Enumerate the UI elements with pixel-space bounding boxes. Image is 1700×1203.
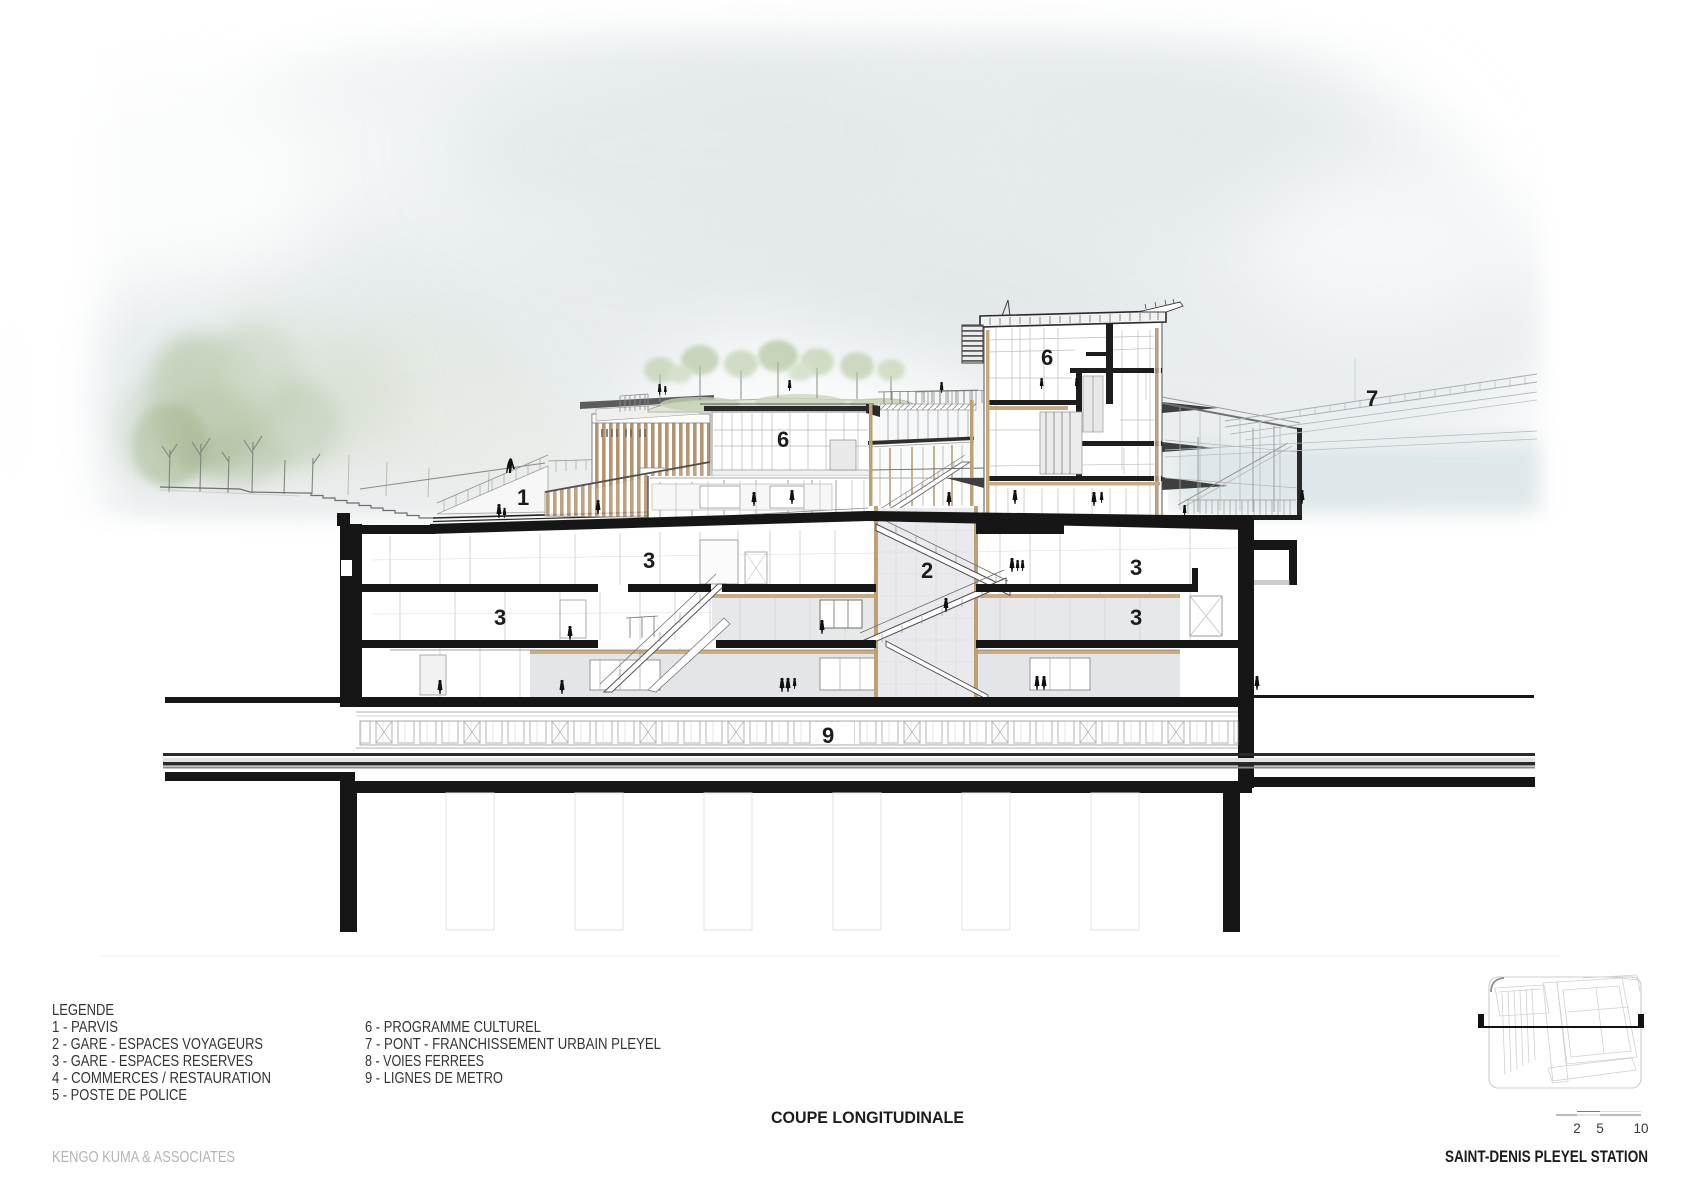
svg-text:LEGENDE: LEGENDE — [52, 1002, 114, 1019]
svg-text:KENGO KUMA & ASSOCIATES: KENGO KUMA & ASSOCIATES — [52, 1149, 235, 1166]
svg-text:3: 3 — [494, 605, 506, 630]
svg-text:1: 1 — [517, 485, 529, 510]
svg-text:7 - PONT - FRANCHISSEMENT URB: 7 - PONT - FRANCHISSEMENT URBAIN PLEYEL — [365, 1036, 661, 1053]
svg-text:6: 6 — [777, 427, 789, 452]
svg-text:9 - LIGNES DE METRO: 9 - LIGNES DE METRO — [365, 1070, 503, 1087]
svg-text:8 - VOIES FERREES: 8 - VOIES FERREES — [365, 1053, 484, 1070]
svg-text:2 - GARE - ESPACES VOYAGEURS: 2 - GARE - ESPACES VOYAGEURS — [52, 1036, 263, 1053]
svg-text:7: 7 — [1366, 386, 1378, 411]
svg-text:5: 5 — [1596, 1121, 1604, 1136]
svg-text:3: 3 — [1130, 555, 1142, 580]
svg-text:1 - PARVIS: 1 - PARVIS — [52, 1019, 118, 1036]
svg-text:4 - COMMERCES / RESTAURATION: 4 - COMMERCES / RESTAURATION — [52, 1070, 271, 1087]
svg-text:6: 6 — [1041, 345, 1053, 370]
svg-text:SAINT-DENIS PLEYEL STATION: SAINT-DENIS PLEYEL STATION — [1445, 1148, 1648, 1166]
svg-text:9: 9 — [822, 723, 834, 748]
svg-text:2: 2 — [1573, 1121, 1581, 1136]
svg-text:6 - PROGRAMME CULTUREL: 6 - PROGRAMME CULTUREL — [365, 1019, 541, 1036]
svg-text:3 - GARE - ESPACES RESERVES: 3 - GARE - ESPACES RESERVES — [52, 1053, 253, 1070]
svg-text:COUPE LONGITUDINALE: COUPE LONGITUDINALE — [771, 1109, 964, 1127]
svg-text:5 - POSTE DE POLICE: 5 - POSTE DE POLICE — [52, 1087, 187, 1104]
svg-text:10: 10 — [1633, 1121, 1648, 1136]
svg-text:3: 3 — [643, 548, 655, 573]
svg-text:3: 3 — [1130, 605, 1142, 630]
svg-text:2: 2 — [921, 558, 933, 583]
